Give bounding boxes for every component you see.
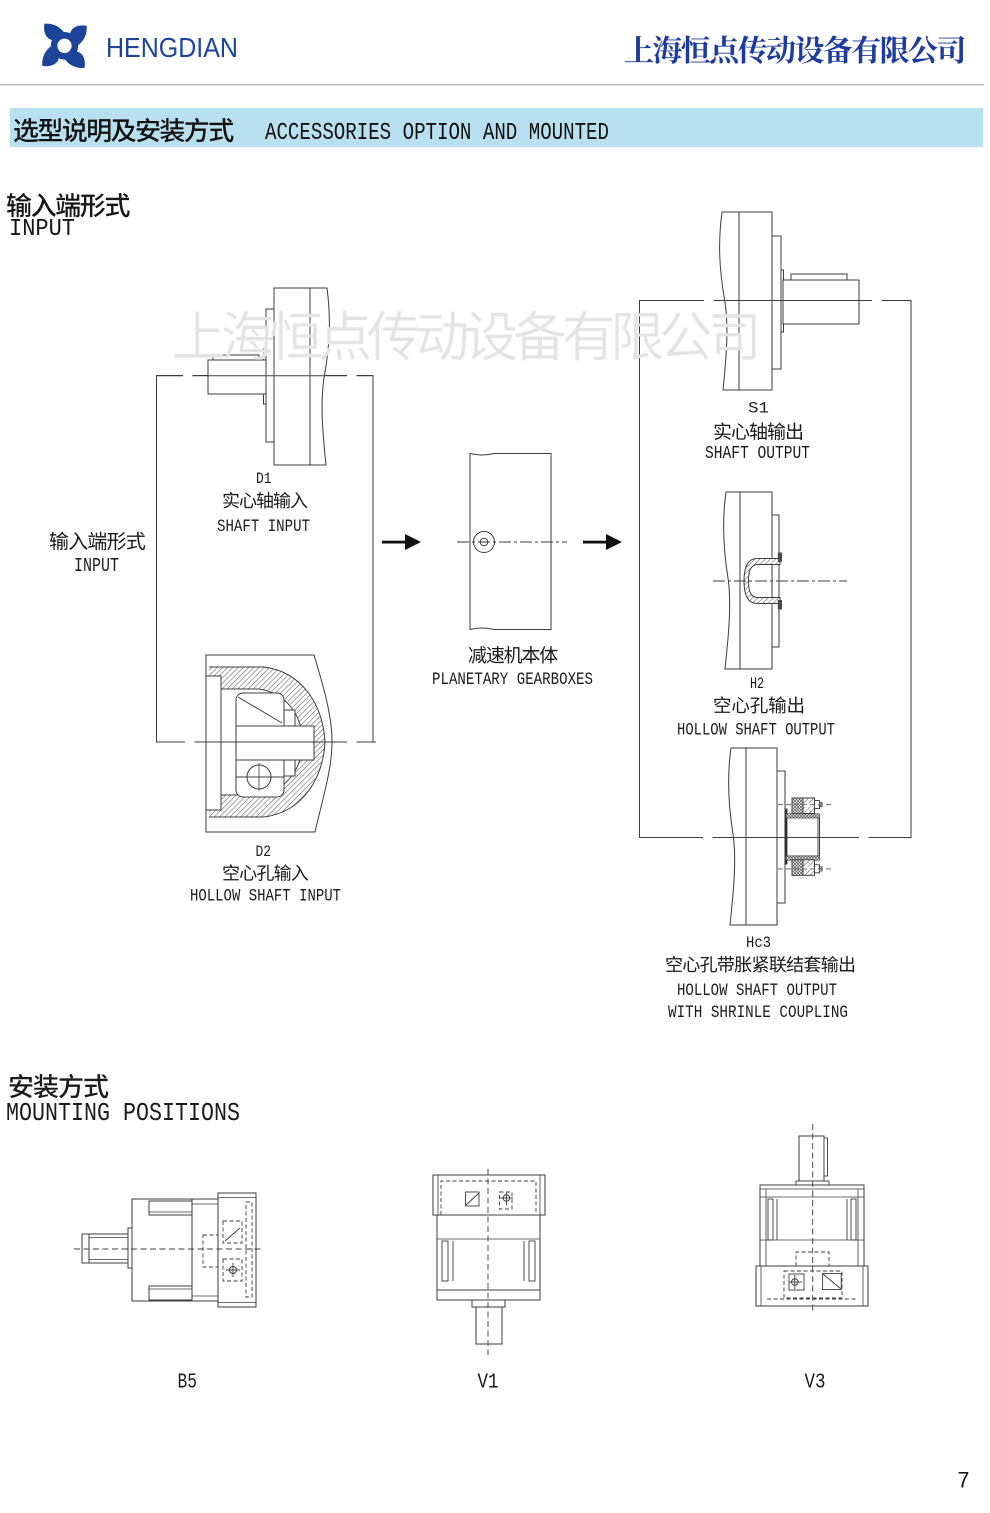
svg-text:7: 7 (957, 1468, 970, 1494)
svg-text:HOLLOW SHAFT INPUT: HOLLOW SHAFT INPUT (190, 887, 341, 907)
svg-text:HOLLOW SHAFT OUTPUT: HOLLOW SHAFT OUTPUT (677, 981, 837, 1001)
svg-text:SHAFT OUTPUT: SHAFT OUTPUT (705, 444, 810, 464)
svg-text:MOUNTING POSITIONS: MOUNTING POSITIONS (6, 1098, 240, 1128)
svg-text:B5: B5 (178, 1371, 198, 1395)
svg-text:Hc3: Hc3 (746, 934, 771, 952)
svg-text:H2: H2 (750, 675, 764, 693)
svg-text:V1: V1 (478, 1371, 499, 1395)
svg-text:D1: D1 (256, 470, 272, 488)
svg-text:WITH SHRINLE COUPLING: WITH SHRINLE COUPLING (668, 1003, 848, 1023)
svg-text:HOLLOW SHAFT OUTPUT: HOLLOW SHAFT OUTPUT (677, 721, 835, 741)
svg-text:ACCESSORIES OPTION AND MOUNTED: ACCESSORIES OPTION AND MOUNTED (265, 120, 609, 147)
svg-text:INPUT: INPUT (74, 555, 119, 577)
svg-text:HENGDIAN: HENGDIAN (106, 32, 238, 63)
svg-text:SHAFT INPUT: SHAFT INPUT (217, 517, 310, 537)
svg-text:PLANETARY GEARBOXES: PLANETARY GEARBOXES (432, 670, 593, 690)
svg-text:D2: D2 (256, 843, 272, 861)
svg-text:INPUT: INPUT (9, 216, 75, 243)
svg-text:S1: S1 (748, 400, 769, 418)
svg-text:V3: V3 (805, 1371, 826, 1395)
